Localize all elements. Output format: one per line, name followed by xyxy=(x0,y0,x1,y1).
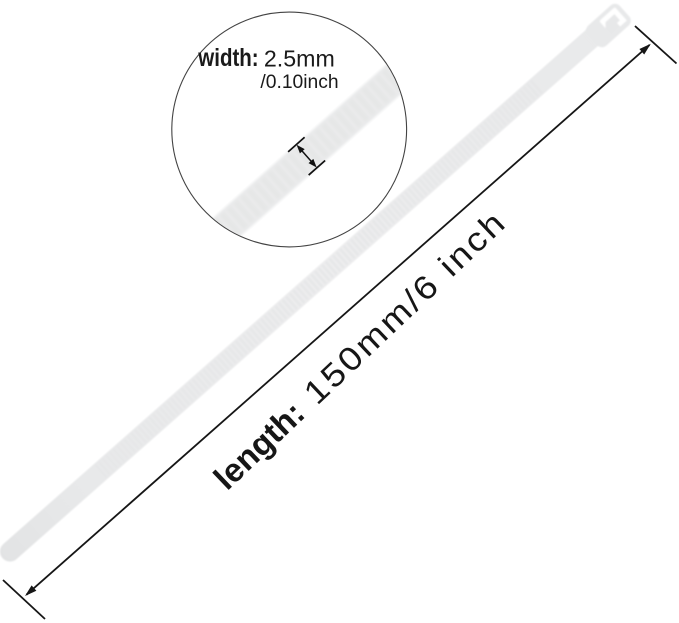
svg-text:2.5mm: 2.5mm xyxy=(264,46,335,72)
svg-text:/0.10inch: /0.10inch xyxy=(260,72,338,93)
svg-text:width:: width: xyxy=(197,43,258,71)
